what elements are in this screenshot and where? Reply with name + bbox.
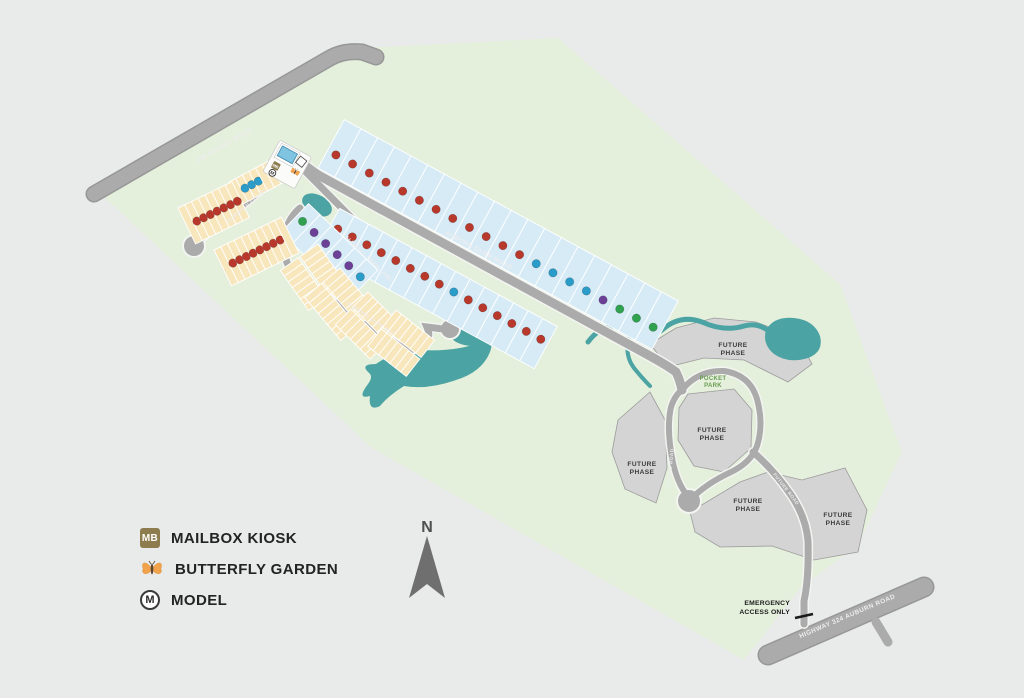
svg-text:EMERGENCY: EMERGENCY <box>744 600 790 607</box>
svg-text:ACCESS ONLY: ACCESS ONLY <box>739 609 790 616</box>
north-label: N <box>421 519 433 536</box>
label-future-phase-north: FUTURE PHASE <box>718 342 747 357</box>
legend-label-model: MODEL <box>171 592 227 609</box>
svg-text:FUTURE: FUTURE <box>697 427 726 434</box>
road-highway-stub <box>876 622 888 642</box>
legend-item-mailbox-kiosk: MB MAILBOX KIOSK <box>140 527 338 549</box>
svg-text:PHASE: PHASE <box>630 469 655 476</box>
svg-text:FUTURE: FUTURE <box>718 342 747 349</box>
mailbox-kiosk-icon: MB <box>140 528 160 548</box>
svg-text:PHASE: PHASE <box>826 520 851 527</box>
north-arrow: N <box>409 519 445 598</box>
north-arrow-icon <box>409 536 445 598</box>
legend-item-butterfly-garden: BUTTERFLY GARDEN <box>140 558 338 580</box>
svg-text:PHASE: PHASE <box>700 435 725 442</box>
legend-item-model: M MODEL <box>140 589 338 611</box>
future-cul-de-sac <box>678 490 700 512</box>
svg-text:PHASE: PHASE <box>721 350 746 357</box>
svg-text:FUTURE: FUTURE <box>733 498 762 505</box>
svg-text:PHASE: PHASE <box>736 506 761 513</box>
label-future-phase-west: FUTURE PHASE <box>627 461 656 476</box>
site-plan-map: MB M JIM MOORE ROAD HIGHWAY 324 AUBURN R… <box>0 0 1024 698</box>
butterfly-icon <box>140 560 164 578</box>
map-legend: MB MAILBOX KIOSK BUTTERFLY GARDEN M MODE… <box>140 527 338 611</box>
label-future-phase-south: FUTURE PHASE <box>733 498 762 513</box>
label-future-phase-center: FUTURE PHASE <box>697 427 726 442</box>
legend-label-mailbox-kiosk: MAILBOX KIOSK <box>171 530 297 547</box>
svg-text:PARK: PARK <box>704 383 722 389</box>
legend-label-butterfly-garden: BUTTERFLY GARDEN <box>175 561 338 578</box>
svg-text:FUTURE: FUTURE <box>627 461 656 468</box>
svg-text:FUTURE: FUTURE <box>823 512 852 519</box>
svg-text:POCKET: POCKET <box>700 376 727 382</box>
model-icon: M <box>140 590 160 610</box>
label-future-phase-southeast: FUTURE PHASE <box>823 512 852 527</box>
